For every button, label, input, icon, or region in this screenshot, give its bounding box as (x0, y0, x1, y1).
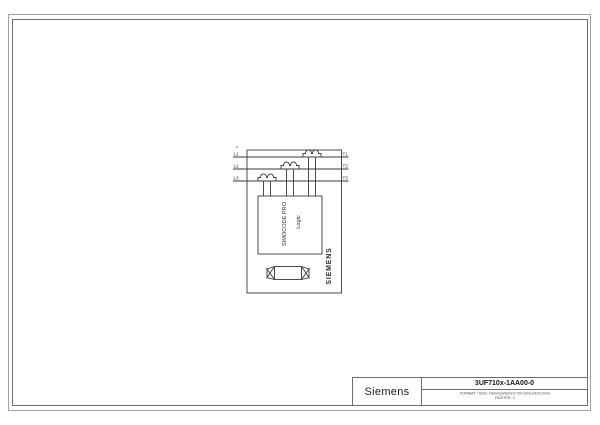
drawing-page: L1 L2 L3 T1 T2 T3 * SIMOCODE PRO Logic S… (0, 0, 600, 425)
current-transformer-l1 (303, 150, 321, 157)
terminal-label-l3: L3 (234, 176, 240, 181)
terminal-label-t1: T1 (343, 152, 349, 157)
current-transformer-l2 (281, 162, 299, 169)
terminal-label-l2: L2 (234, 164, 240, 169)
connector-body (275, 267, 302, 280)
simocode-wiring-diagram: L1 L2 L3 T1 T2 T3 * SIMOCODE PRO Logic S… (0, 0, 600, 425)
meta-line-raster: RASTER: 4 (422, 396, 587, 401)
terminal-label-t3: T3 (343, 176, 349, 181)
title-block-meta-lines: FORMAT / SIZE: H(mm)xW(mm)=297.0mmx420.0… (422, 391, 587, 400)
title-block-right: 3UF710x-1AA00-0 FORMAT / SIZE: H(mm)xW(m… (422, 378, 587, 405)
current-transformer-l3 (258, 174, 276, 181)
connector-left-flange (267, 267, 275, 280)
terminal-label-l1: L1 (234, 152, 240, 157)
title-block-meta: FORMAT / SIZE: H(mm)xW(mm)=297.0mmx420.0… (422, 390, 587, 405)
logic-block-outline (258, 196, 322, 254)
footnote-mark: * (236, 146, 238, 152)
title-block-brand: Siemens (353, 378, 422, 405)
device-name-label: SIMOCODE PRO (282, 201, 288, 246)
siemens-vertical-wordmark: SIEMENS (326, 247, 333, 284)
part-number: 3UF710x-1AA00-0 (422, 378, 587, 390)
connector-right-flange (302, 267, 310, 280)
terminal-label-t2: T2 (343, 164, 349, 169)
title-block: Siemens 3UF710x-1AA00-0 FORMAT / SIZE: H… (352, 377, 588, 406)
logic-label: Logic (296, 215, 302, 229)
